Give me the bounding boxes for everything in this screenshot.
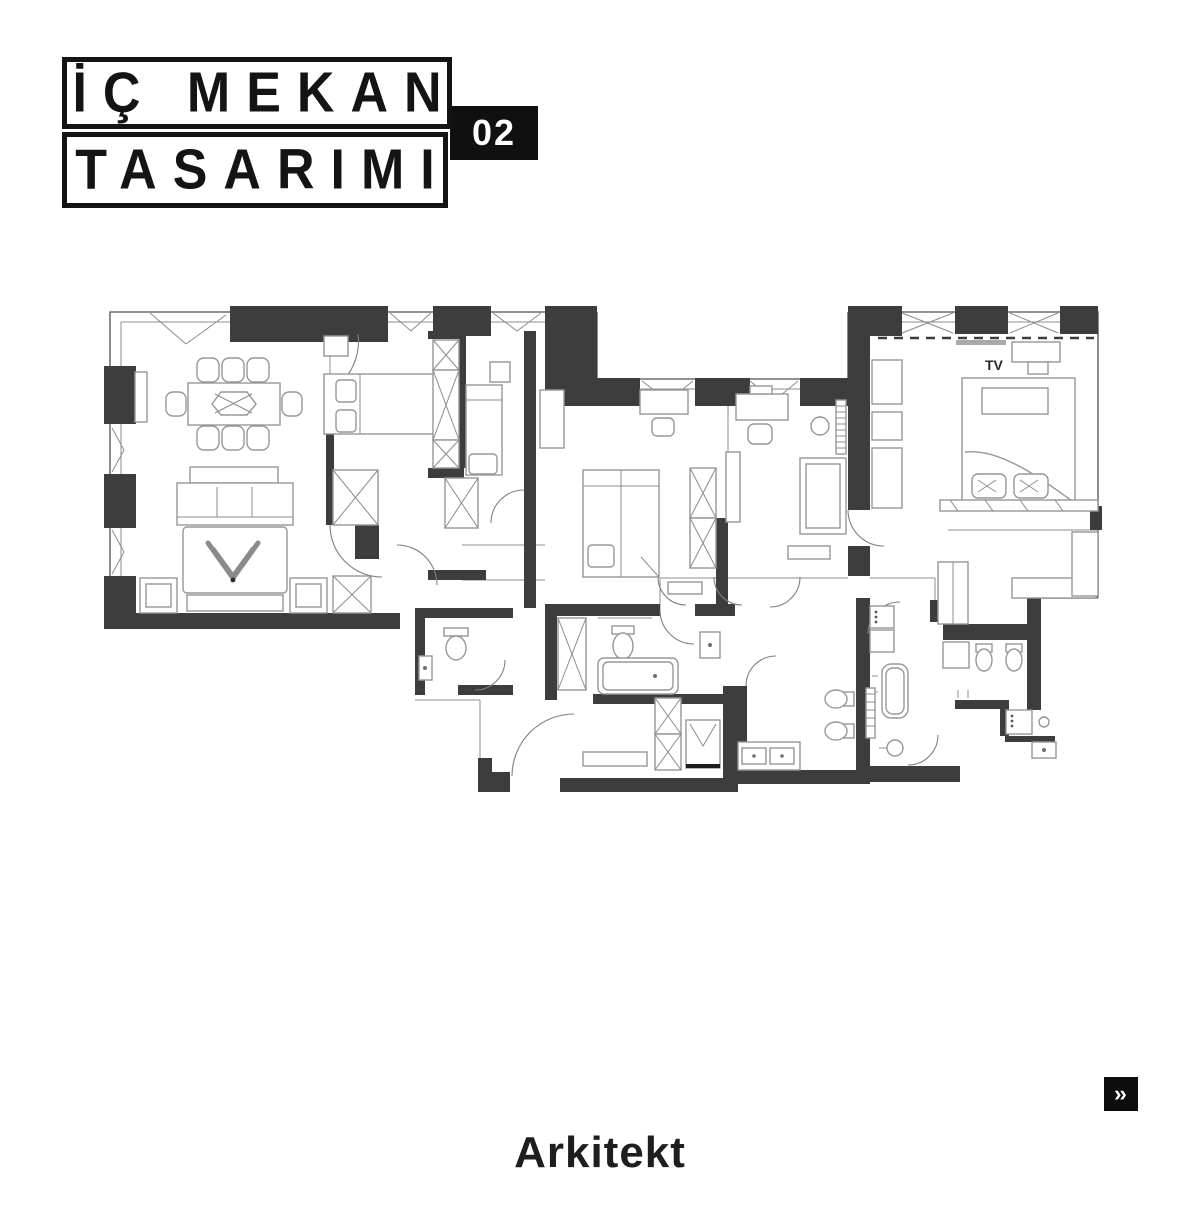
title-line-2-text: TASARIMI — [59, 138, 450, 203]
title-line-1-text: İÇ MEKAN — [56, 61, 457, 126]
study-room-furniture — [726, 386, 846, 559]
title-line-2: TASARIMI — [62, 132, 448, 208]
bedroom-a-furniture — [466, 362, 510, 475]
master-bedroom-furniture: TV — [872, 340, 1098, 511]
issue-number-badge: 02 — [450, 106, 538, 160]
chevrons-right-icon: ›› — [1114, 1083, 1125, 1105]
entry-hall-furniture — [583, 698, 720, 770]
tv-label: TV — [985, 357, 1004, 373]
next-arrow-button[interactable]: ›› — [1104, 1077, 1138, 1111]
bedroom-b-furniture — [540, 390, 716, 594]
brand-logo: Arkitekt — [0, 1128, 1200, 1178]
title-line-1: İÇ MEKAN — [62, 57, 452, 129]
